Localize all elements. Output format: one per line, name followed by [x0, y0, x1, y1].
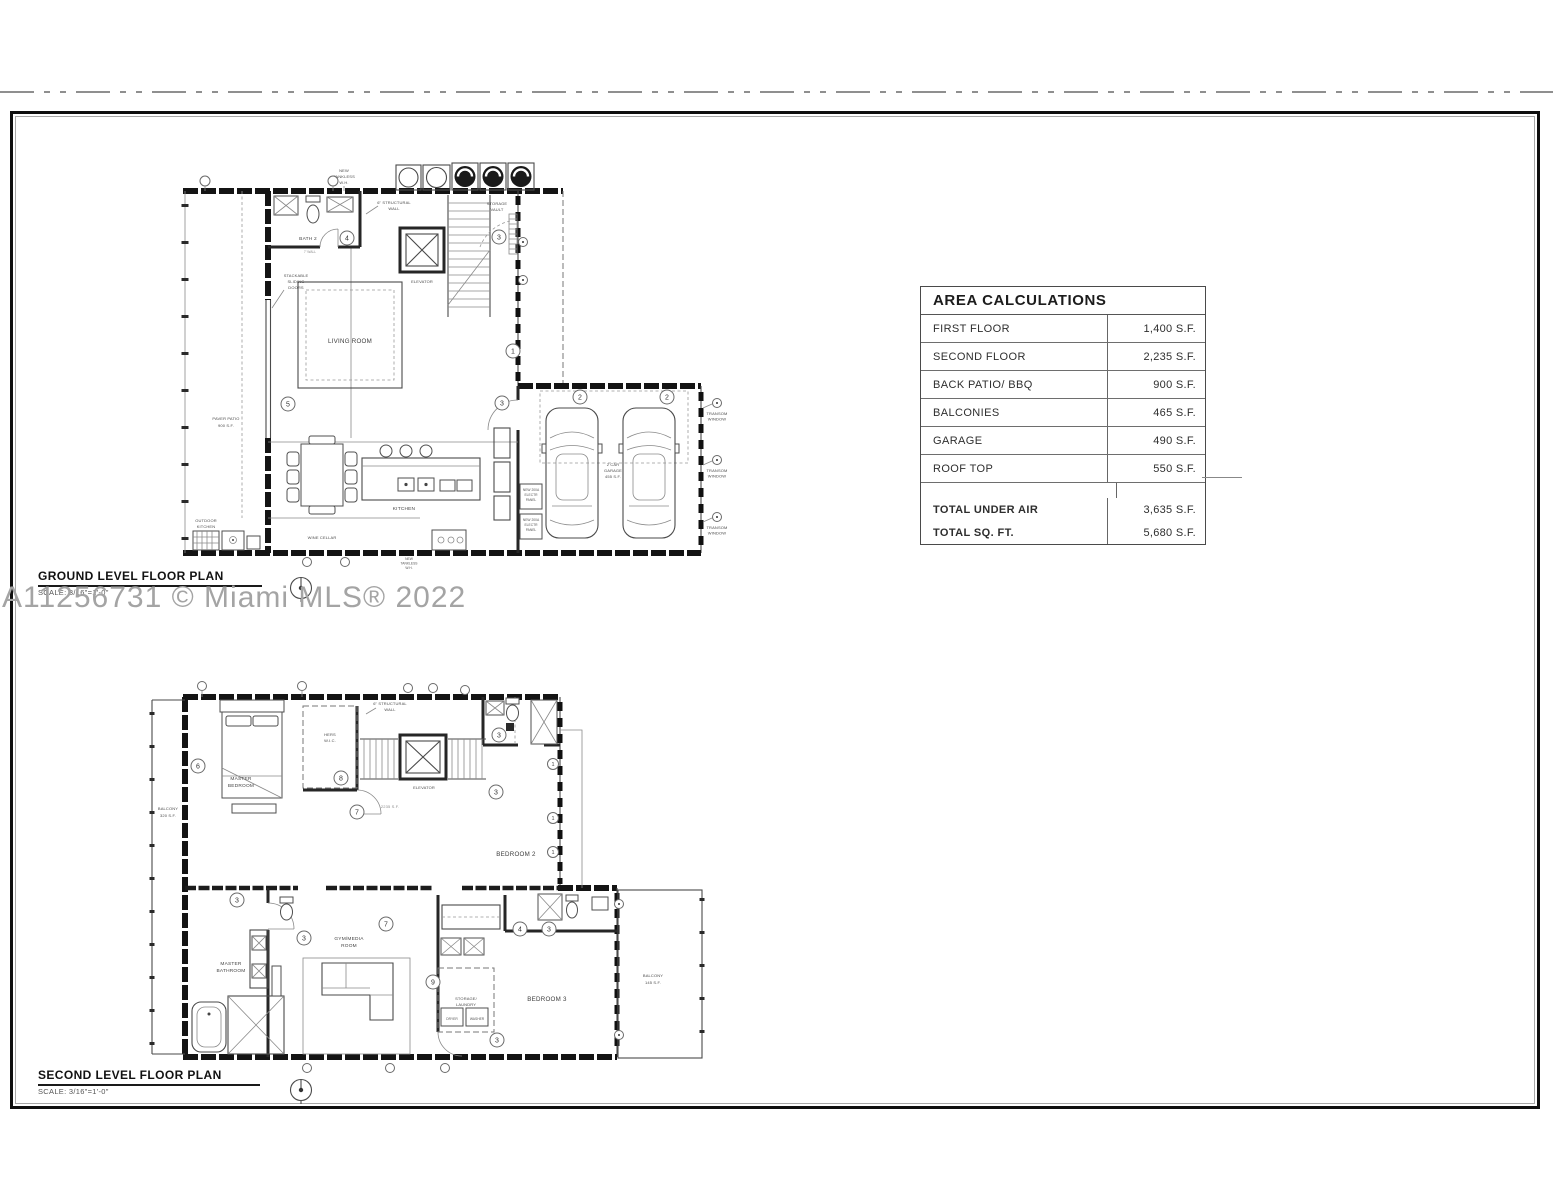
room-label-master-2: BEDROOM	[228, 783, 254, 789]
sofa-icon	[322, 963, 393, 1020]
toilet-tank-icon	[280, 897, 293, 903]
svg-text:7: 7	[355, 810, 359, 817]
ground-kitchen: KITCHEN	[362, 428, 510, 550]
second-balcony-left: BALCONY 320 S.F.	[152, 700, 185, 1054]
table-spacer	[921, 483, 1205, 498]
svg-text:3: 3	[500, 401, 504, 408]
room-label-master-1: MASTER	[230, 776, 252, 782]
room-label-living: LIVING ROOM	[328, 338, 372, 345]
svg-text:3: 3	[497, 235, 501, 242]
car-icon	[542, 408, 602, 538]
bathtub-icon	[192, 1002, 226, 1052]
note-7ft-wall: 7' WALL	[304, 250, 316, 254]
second-plan-title-block: SECOND LEVEL FLOOR PLAN SCALE: 3/16"=1'-…	[38, 1066, 260, 1096]
area-table-title: AREA CALCULATIONS	[921, 287, 1205, 315]
second-master-bedroom: MASTER BEDROOM HERS W.I.C.	[220, 700, 357, 813]
note-stackable-1: STACKABLE	[284, 273, 309, 278]
svg-text:2: 2	[665, 395, 669, 402]
table-total-row: TOTAL UNDER AIR 3,635 S.F.	[921, 498, 1205, 521]
room-label-mbath-2: BATHROOM	[217, 968, 246, 974]
svg-text:DRYER: DRYER	[446, 1017, 458, 1021]
ground-living-room: LIVING ROOM	[298, 282, 402, 388]
car-icon	[619, 408, 679, 538]
svg-text:TRANSOM: TRANSOM	[706, 411, 727, 416]
total-value: 5,680 S.F.	[1107, 521, 1205, 544]
row-value: 490 S.F.	[1107, 427, 1205, 454]
toilet-tank-icon	[566, 895, 578, 901]
row-label: ROOF TOP	[921, 455, 1107, 482]
room-label-gym-2: ROOM	[341, 943, 357, 949]
second-balcony-right: BALCONY 145 S.F.	[618, 890, 702, 1058]
svg-text:3: 3	[547, 927, 551, 934]
svg-text:WINDOW: WINDOW	[708, 417, 727, 422]
svg-text:6: 6	[196, 764, 200, 771]
table-row: GARAGE 490 S.F.	[921, 427, 1205, 455]
note-tankless-3: W.H.	[339, 180, 348, 185]
room-label-storage-1: STORAGE	[487, 201, 508, 206]
note-tankless-b2: TANKLESS	[401, 562, 419, 566]
row-label: FIRST FLOOR	[921, 315, 1107, 342]
svg-text:1: 1	[551, 762, 554, 768]
room-label-elevator2: ELEVATOR	[413, 785, 435, 790]
svg-text:8: 8	[339, 776, 343, 783]
toilet-icon	[507, 705, 519, 721]
total-value: 3,635 S.F.	[1107, 498, 1205, 521]
ac-condenser-icon	[480, 163, 506, 190]
row-value: 550 S.F.	[1107, 455, 1205, 482]
toilet-tank-icon	[306, 196, 320, 202]
toilet-tank-icon	[506, 698, 519, 704]
second-gym-media: GYM/MEDIA ROOM	[272, 936, 410, 1054]
room-label-bedroom3: BEDROOM 3	[527, 996, 567, 1003]
note-tankless-1: NEW	[339, 168, 349, 173]
room-label-balcony-right-1: BALCONY	[643, 973, 663, 978]
row-value: 465 S.F.	[1107, 399, 1205, 426]
table-row: SECOND FLOOR 2,235 S.F.	[921, 343, 1205, 371]
svg-text:PANEL: PANEL	[526, 498, 537, 502]
room-label-patio-2: 900 S.F.	[218, 423, 234, 428]
ground-equipment-row	[396, 163, 534, 190]
row-value: 900 S.F.	[1107, 371, 1205, 398]
bar-stool-icon	[420, 445, 432, 457]
svg-text:4: 4	[518, 927, 522, 934]
second-elevator: ELEVATOR	[400, 735, 446, 790]
svg-text:WASHER: WASHER	[470, 1017, 485, 1021]
total-label: TOTAL UNDER AIR	[921, 498, 1107, 521]
svg-text:WINDOW: WINDOW	[708, 531, 727, 536]
ground-floor-plan: BATH 2 7' WALL ELEVATOR STORAGE VAULT	[183, 163, 728, 602]
mls-watermark: A11256731 © Miami MLS® 2022	[2, 581, 466, 615]
svg-text:NEW 200A: NEW 200A	[523, 518, 540, 522]
toilet-icon	[567, 902, 578, 918]
svg-text:ELECTR: ELECTR	[524, 523, 538, 527]
room-label-balcony-right-2: 145 S.F.	[645, 980, 661, 985]
ground-dining-table	[287, 436, 357, 514]
area-calculations-table: AREA CALCULATIONS FIRST FLOOR 1,400 S.F.…	[920, 286, 1206, 545]
svg-text:WINDOW: WINDOW	[708, 474, 727, 479]
room-label-garage-2: GARAGE	[604, 468, 622, 473]
washer-icon: WASHER	[466, 1008, 488, 1026]
svg-text:3: 3	[495, 1038, 499, 1045]
second-plan-title: SECOND LEVEL FLOOR PLAN	[38, 1068, 260, 1086]
note-structural-wall-1: 6" STRUCTURAL	[377, 200, 411, 205]
svg-text:1: 1	[511, 349, 515, 356]
svg-text:NEW 200A: NEW 200A	[523, 488, 540, 492]
total-label: TOTAL SQ. FT.	[921, 521, 1107, 544]
room-label-patio-1: PAVER PATIO	[212, 416, 239, 421]
room-label-outdoor-1: OUTDOOR	[195, 518, 217, 523]
transom-tag: TRANSOM WINDOW	[703, 399, 728, 422]
row-label: GARAGE	[921, 427, 1107, 454]
shower-icon	[228, 996, 284, 1054]
svg-text:3: 3	[235, 898, 239, 905]
transom-tag: TRANSOM WINDOW	[703, 456, 728, 479]
room-label-balcony-left-2: 320 S.F.	[160, 813, 176, 818]
svg-text:TRANSOM: TRANSOM	[706, 525, 727, 530]
room-label-laundry-2: LAUNDRY	[456, 1002, 476, 1007]
table-total-row: TOTAL SQ. FT. 5,680 S.F.	[921, 521, 1205, 544]
note-tankless-b1: NEW	[405, 557, 414, 561]
note-structural2-1: 6" STRUCTURAL	[373, 701, 407, 706]
ground-paver-patio: PAVER PATIO 900 S.F.	[212, 191, 242, 518]
second-floor-plan: BALCONY 320 S.F. BALCONY 145 S.F.	[152, 682, 702, 1105]
pool-equipment-icon	[396, 165, 421, 190]
row-label: SECOND FLOOR	[921, 343, 1107, 370]
row-value: 2,235 S.F.	[1107, 343, 1205, 370]
room-label-bath2: BATH 2	[299, 236, 317, 242]
ground-outdoor-kitchen: OUTDOOR KITCHEN	[193, 518, 260, 550]
table-row: BALCONIES 465 S.F.	[921, 399, 1205, 427]
note-structural-wall-2: WALL	[388, 206, 400, 211]
transom-tag: TRANSOM WINDOW	[703, 513, 728, 536]
room-label-wine-cellar: WINE CELLAR	[308, 535, 337, 540]
svg-text:TRANSOM: TRANSOM	[706, 468, 727, 473]
tv-console-icon	[272, 966, 281, 996]
svg-text:4: 4	[345, 236, 349, 243]
ground-garage: 2 2 2 CAR GARAGE 455 S.F. NEW 200A ELECT…	[520, 390, 688, 539]
row-label: BALCONIES	[921, 399, 1107, 426]
room-label-garage-1: 2 CAR	[607, 462, 620, 467]
svg-text:2: 2	[578, 395, 582, 402]
walk-in-closet: HERS W.I.C.	[303, 706, 357, 788]
room-label-wic-1: HERS	[324, 732, 336, 737]
svg-text:9: 9	[431, 980, 435, 987]
dryer-icon: DRYER	[441, 1008, 463, 1026]
architectural-sheet-page: BATH 2 7' WALL ELEVATOR STORAGE VAULT	[0, 0, 1553, 1200]
svg-text:3: 3	[497, 733, 501, 740]
room-label-elevator: ELEVATOR	[411, 279, 433, 284]
room-label-garage-3: 455 S.F.	[605, 474, 621, 479]
bar-stool-icon	[380, 445, 392, 457]
sink-icon	[592, 897, 608, 910]
second-plan-scale: SCALE: 3/16"=1'-0"	[38, 1087, 260, 1096]
row-value: 1,400 S.F.	[1107, 315, 1205, 342]
room-label-gym-1: GYM/MEDIA	[334, 936, 364, 942]
svg-text:3: 3	[494, 790, 498, 797]
room-label-mbath-1: MASTER	[220, 961, 242, 967]
second-storage-laundry: STORAGE/ LAUNDRY DRYER WASHER	[438, 938, 494, 1032]
toilet-icon	[281, 904, 293, 920]
room-label-storage-2: VAULT	[490, 207, 503, 212]
svg-text:PANEL: PANEL	[526, 528, 537, 532]
bed-headboard-icon	[220, 700, 284, 712]
room-label-balcony-left-1: BALCONY	[158, 806, 178, 811]
ground-stairs	[448, 195, 490, 317]
room-label-wic-2: W.I.C.	[324, 738, 336, 743]
north-arrow-icon	[291, 1080, 312, 1105]
note-stackable-3: DOORS	[288, 285, 304, 290]
note-structural2-2: WALL	[384, 707, 396, 712]
row-label: BACK PATIO/ BBQ	[921, 371, 1107, 398]
svg-text:5: 5	[286, 402, 290, 409]
ground-elevator: ELEVATOR	[400, 228, 444, 284]
table-row: ROOF TOP 550 S.F.	[921, 455, 1205, 483]
room-label-outdoor-2: KITCHEN	[197, 524, 216, 529]
svg-text:7: 7	[384, 922, 388, 929]
note-area-sf: 2235 S.F.	[381, 804, 399, 809]
svg-text:1: 1	[551, 850, 554, 856]
room-label-bedroom2: BEDROOM 2	[496, 851, 536, 858]
bar-stool-icon	[400, 445, 412, 457]
svg-text:1: 1	[551, 816, 554, 822]
ac-condenser-icon	[452, 163, 478, 190]
table-row: FIRST FLOOR 1,400 S.F.	[921, 315, 1205, 343]
room-label-kitchen: KITCHEN	[393, 506, 416, 512]
table-extension-line	[1202, 477, 1242, 478]
ground-wine-cellar: WINE CELLAR	[268, 518, 420, 540]
svg-text:ELECTR: ELECTR	[524, 493, 538, 497]
table-row: BACK PATIO/ BBQ 900 S.F.	[921, 371, 1205, 399]
transom-window-tags: TRANSOM WINDOW TRANSOM WINDOW TRANSOM WI…	[703, 399, 728, 536]
toilet-icon	[307, 205, 319, 223]
electric-panel-icon: NEW 200A ELECTR PANEL	[520, 514, 542, 539]
electric-panel-icon: NEW 200A ELECTR PANEL	[520, 484, 542, 509]
ac-condenser-icon	[508, 163, 534, 190]
room-label-laundry-1: STORAGE/	[455, 996, 478, 1001]
note-tankless-b3: W.H.	[405, 566, 412, 570]
svg-text:3: 3	[302, 936, 306, 943]
